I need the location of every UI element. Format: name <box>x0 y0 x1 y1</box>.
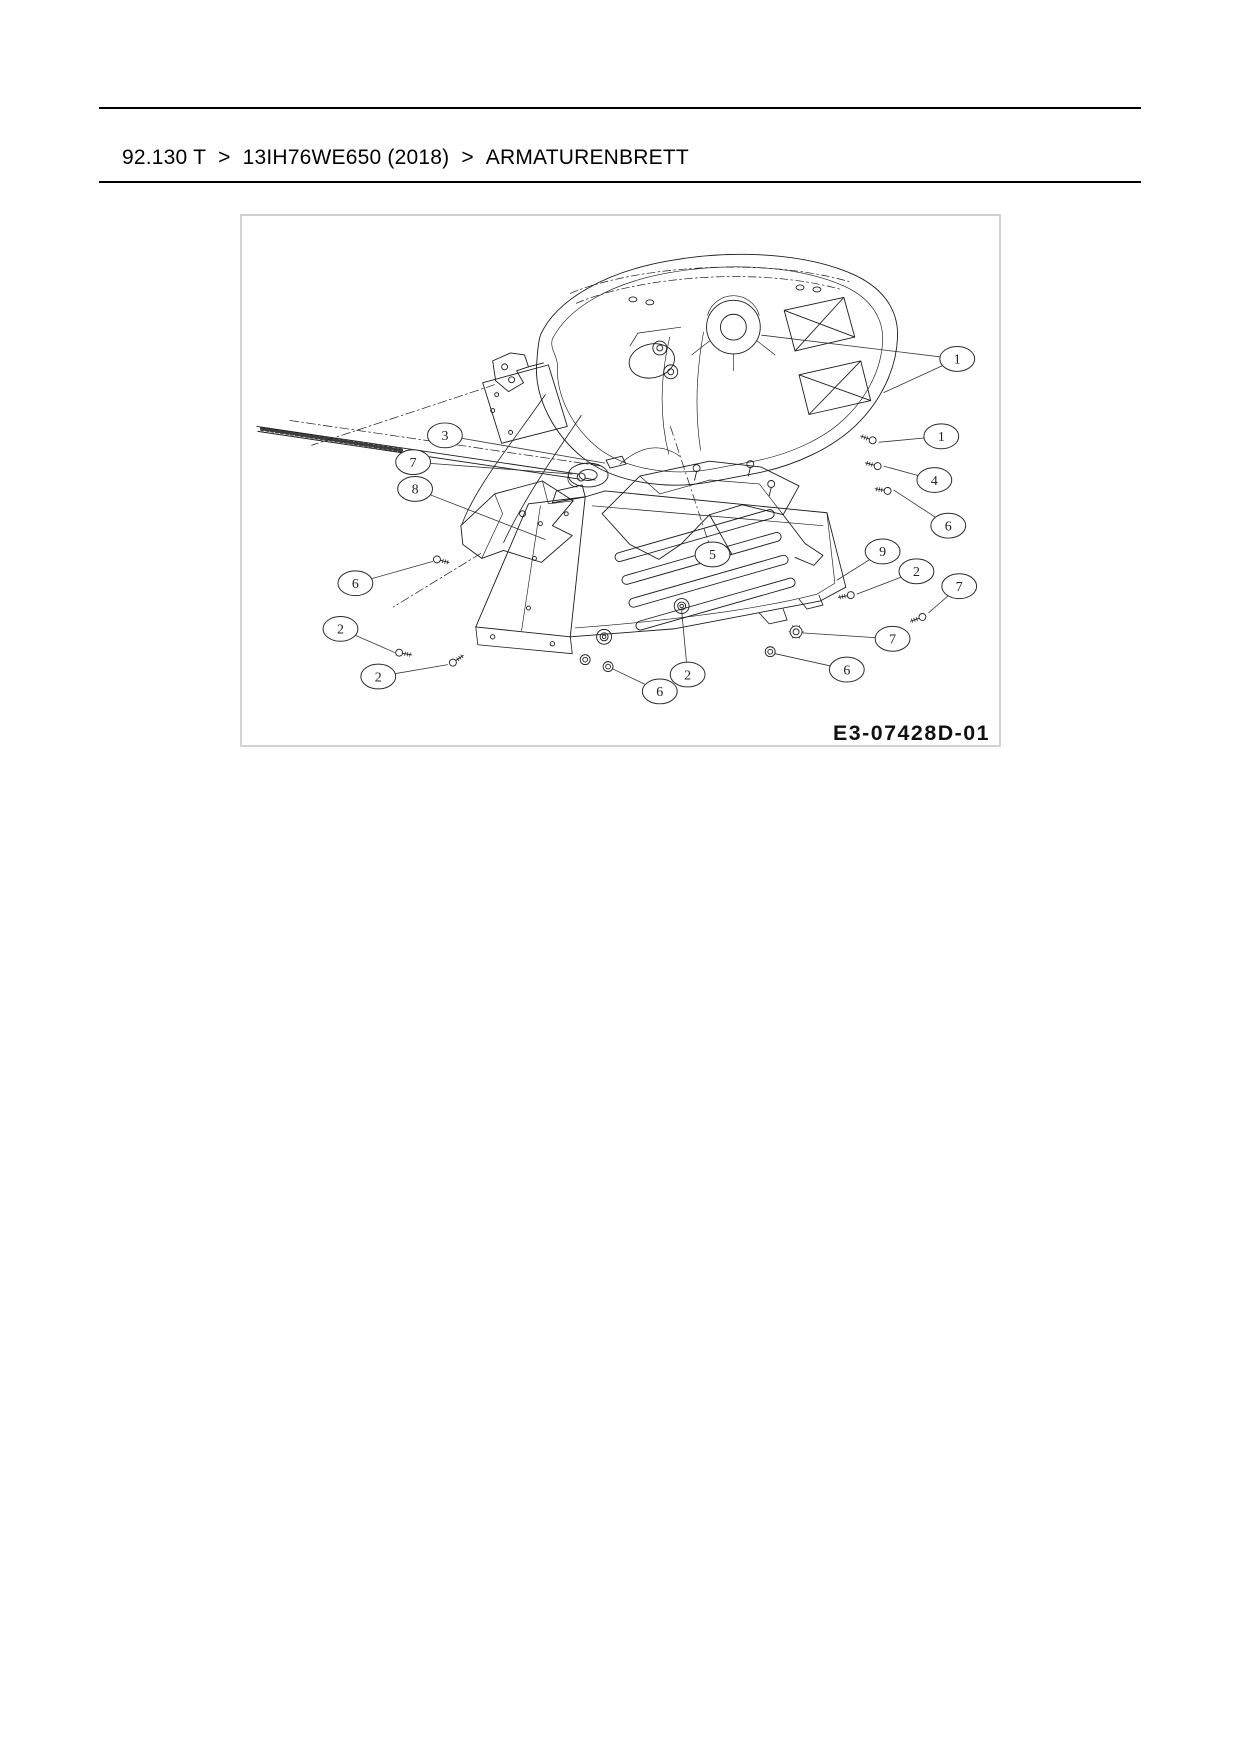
leader-line <box>445 435 605 463</box>
callout-2: 2 <box>361 664 396 689</box>
lower-panel <box>476 485 846 654</box>
callout-balloons: 114692776378622526 <box>323 347 977 704</box>
callout-number: 2 <box>375 670 382 685</box>
callout-4: 4 <box>917 468 952 493</box>
exploded-drawing-svg: 114692776378622526 E3-07428D-01 <box>242 216 999 745</box>
fastener-screw <box>859 433 877 445</box>
fastener-screw <box>433 555 451 566</box>
callout-7: 7 <box>396 450 431 475</box>
callout-number: 6 <box>945 519 952 534</box>
callout-6: 6 <box>338 571 373 596</box>
breadcrumb-separator: > <box>218 146 230 169</box>
callout-number: 6 <box>843 663 850 678</box>
breadcrumb-separator: > <box>461 146 473 169</box>
callout-number: 2 <box>684 668 691 683</box>
callout-6: 6 <box>931 513 966 538</box>
callout-1: 1 <box>940 347 975 372</box>
callout-2: 2 <box>323 616 358 641</box>
callout-9: 9 <box>865 539 900 564</box>
fastener-screw <box>448 652 465 667</box>
callout-7: 7 <box>875 626 910 651</box>
callout-number: 1 <box>938 430 945 445</box>
fastener-washer <box>765 647 775 657</box>
callout-number: 7 <box>889 633 896 648</box>
breadcrumb-item-model[interactable]: 92.130 T <box>122 146 206 169</box>
callout-2: 2 <box>899 559 934 584</box>
dashboard-shell <box>462 254 898 542</box>
callout-number: 6 <box>656 685 663 700</box>
diagram-panel: 114692776378622526 E3-07428D-01 <box>240 214 1001 747</box>
fastener-screw <box>864 459 882 470</box>
callout-number: 2 <box>337 623 344 638</box>
callout-2: 2 <box>670 662 705 687</box>
leader-line <box>761 335 957 359</box>
callout-6: 6 <box>642 679 677 704</box>
callout-number: 7 <box>956 580 963 595</box>
callout-1: 1 <box>924 424 959 449</box>
fastener-washer <box>580 655 590 665</box>
callout-number: 9 <box>879 545 886 560</box>
grommet <box>568 456 626 487</box>
fastener-nut <box>789 625 804 638</box>
fastener-fnut <box>597 629 612 644</box>
callout-leader-lines <box>340 335 959 691</box>
fastener-screw <box>874 485 891 495</box>
fastener-screw <box>909 613 927 625</box>
breadcrumb-item-section[interactable]: ARMATURENBRETT <box>486 146 689 169</box>
callout-number: 3 <box>441 429 448 444</box>
callout-number: 5 <box>709 548 716 563</box>
callout-number: 6 <box>352 577 359 592</box>
header-rule-bottom <box>99 181 1141 183</box>
callout-number: 8 <box>412 483 419 498</box>
breadcrumb-item-variant[interactable]: 13IH76WE650 (2018) <box>243 146 450 169</box>
callout-number: 7 <box>410 456 417 471</box>
callout-8: 8 <box>398 477 433 502</box>
header-rule-top <box>99 107 1141 109</box>
drawing-number: E3-07428D-01 <box>833 721 990 745</box>
callout-7: 7 <box>942 574 977 599</box>
breadcrumb: 92.130 T>13IH76WE650 (2018)>ARMATURENBRE… <box>122 146 689 170</box>
fastener-screw <box>837 591 854 601</box>
callout-5: 5 <box>695 542 730 567</box>
fastener-washer <box>603 662 613 672</box>
callout-number: 2 <box>913 565 920 580</box>
callout-number: 4 <box>931 474 938 489</box>
callout-3: 3 <box>428 423 463 448</box>
fastener-screw <box>395 649 412 659</box>
callout-number: 1 <box>954 353 961 368</box>
callout-6: 6 <box>829 657 864 682</box>
